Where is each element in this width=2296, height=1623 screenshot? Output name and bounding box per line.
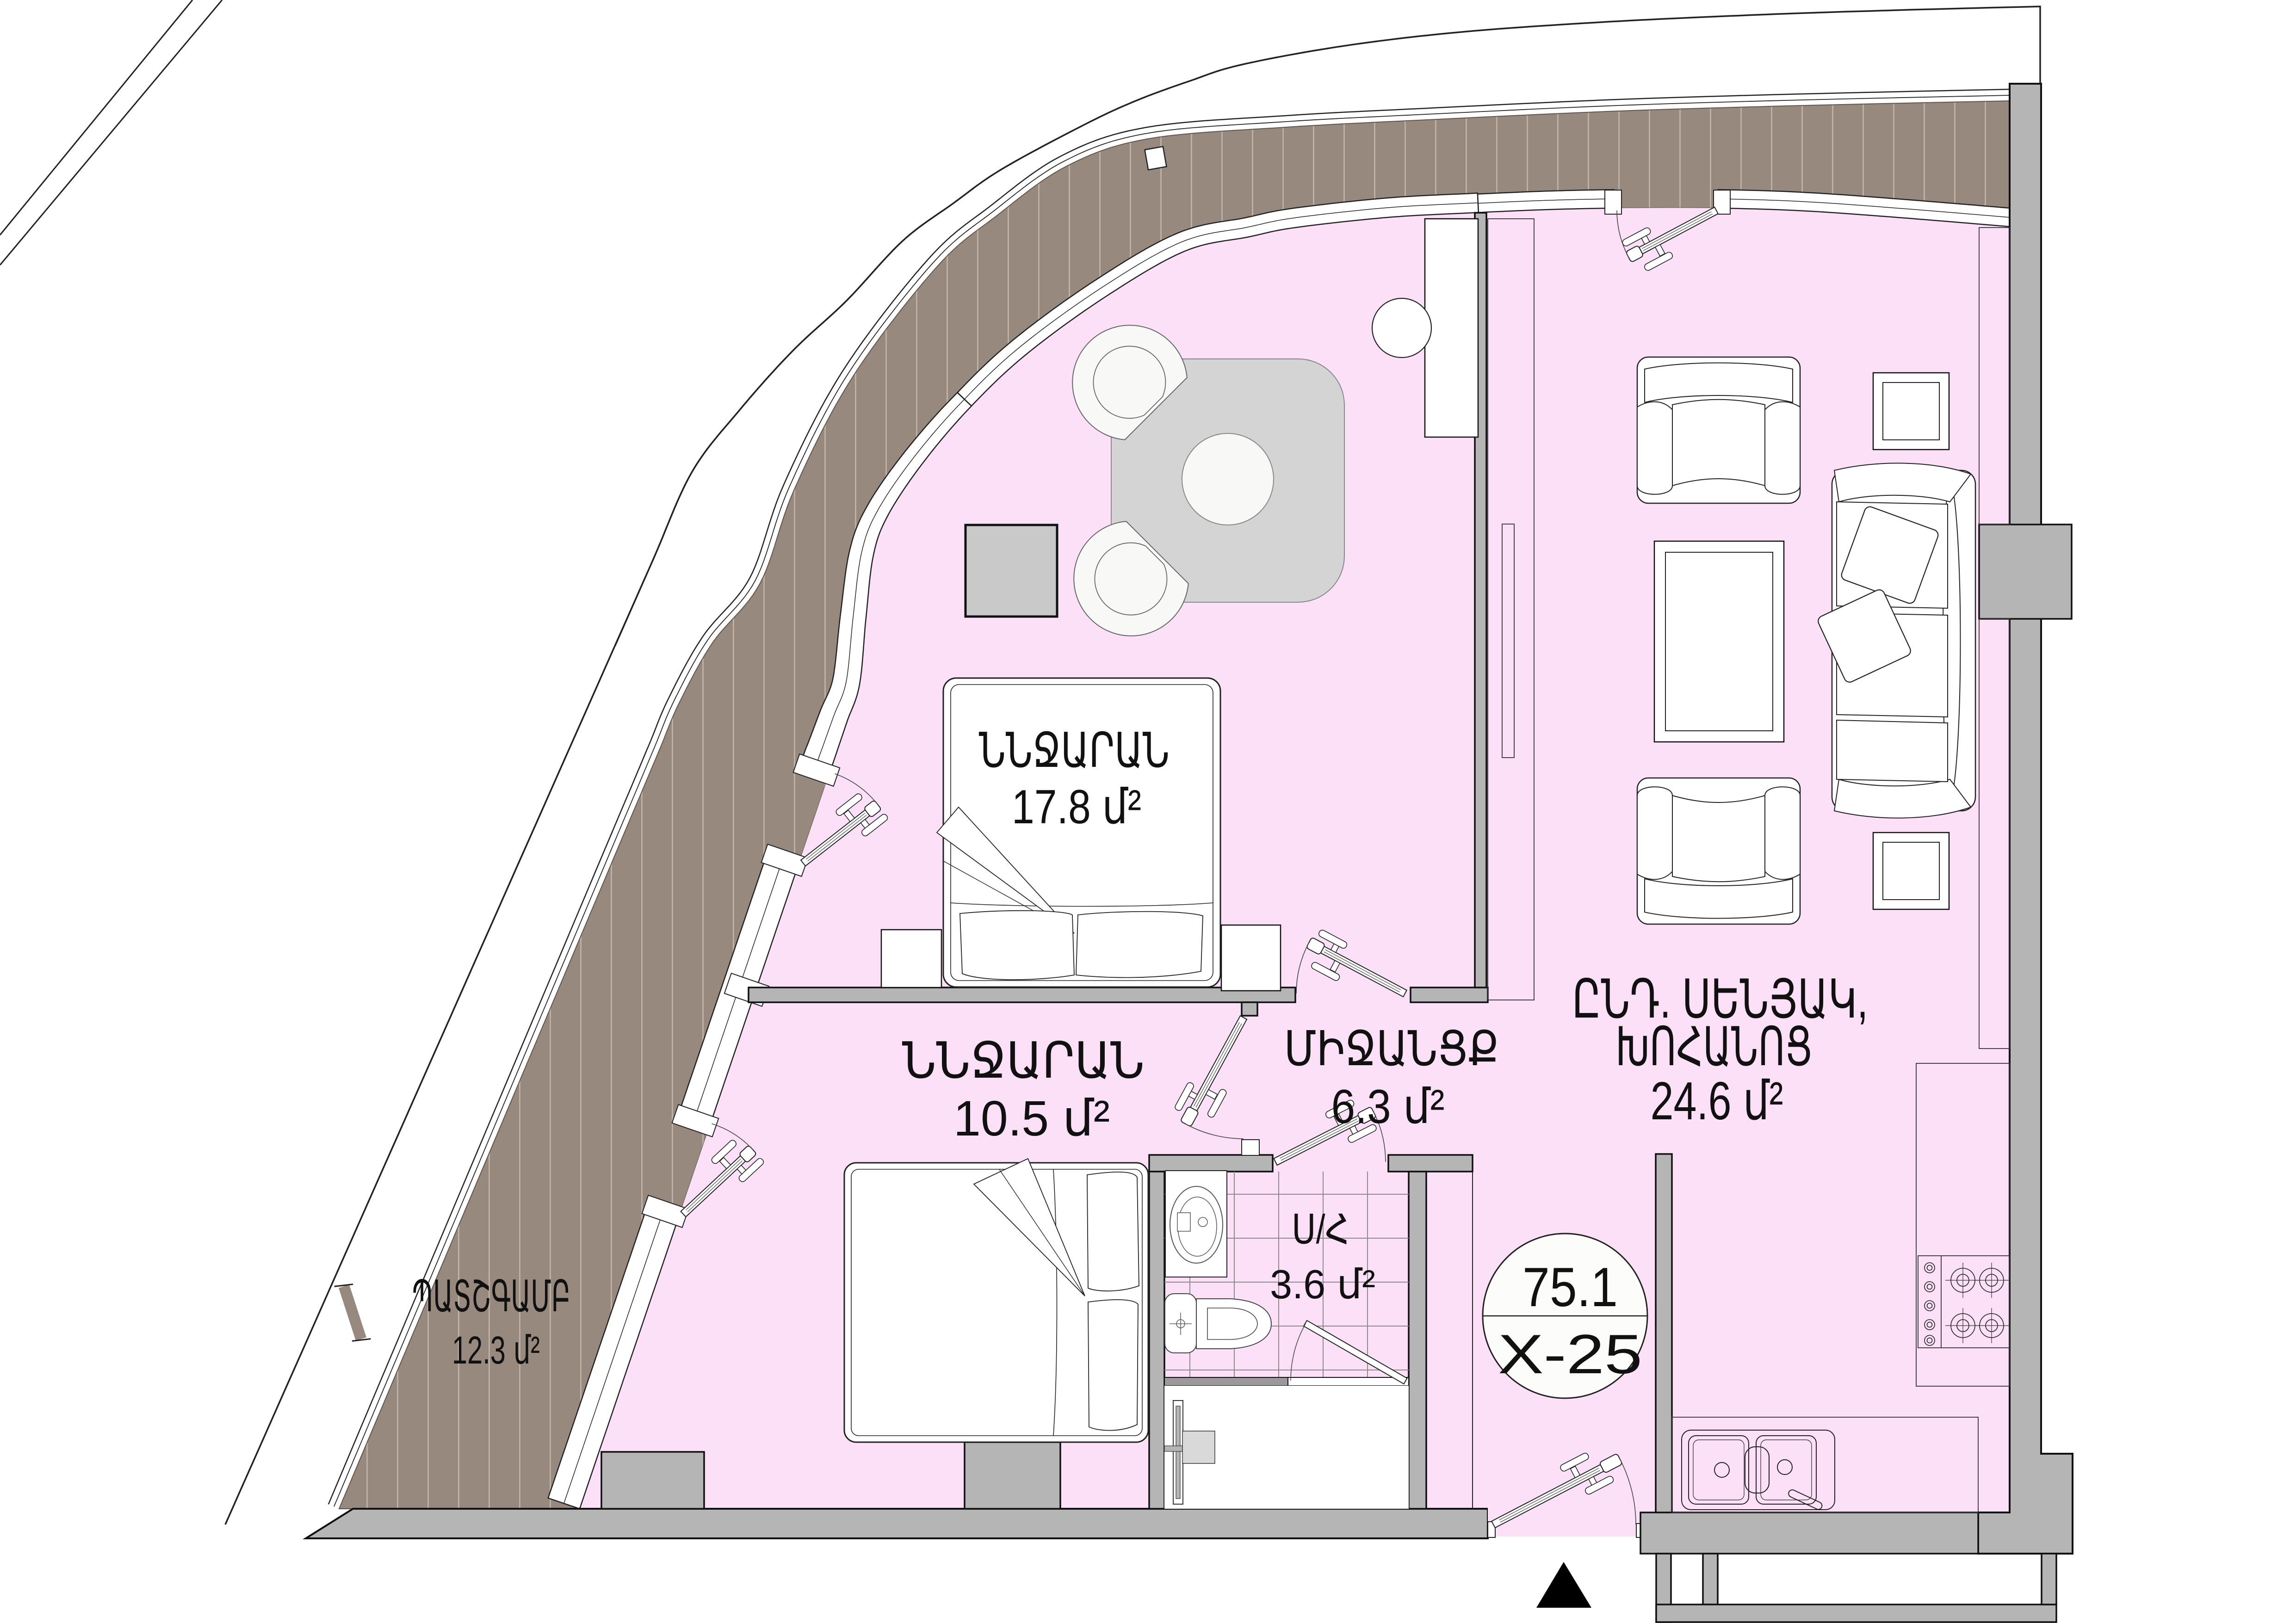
- svg-text:24.6 մ²: 24.6 մ²: [1651, 1071, 1783, 1131]
- svg-text:10.5 մ²: 10.5 մ²: [953, 1090, 1110, 1146]
- svg-text:6.3 մ²: 6.3 մ²: [1331, 1080, 1445, 1134]
- svg-text:ԽՈՀԱՆՈՑ: ԽՈՀԱՆՈՑ: [1615, 1017, 1813, 1077]
- svg-text:ՄԻՋԱՆՑՔ: ՄԻՋԱՆՑՔ: [1284, 1022, 1499, 1076]
- svg-text:75.1: 75.1: [1522, 1256, 1618, 1318]
- svg-text:Ս/Հ: Ս/Հ: [1292, 1206, 1349, 1252]
- svg-text:12.3 մ²: 12.3 մ²: [452, 1328, 540, 1372]
- svg-text:ՊԱՏՇԳԱՄԲ: ՊԱՏՇԳԱՄԲ: [412, 1272, 570, 1321]
- svg-text:X-25: X-25: [1498, 1323, 1642, 1385]
- svg-text:3.6 մ²: 3.6 մ²: [1270, 1261, 1375, 1307]
- svg-text:17.8 մ²: 17.8 մ²: [1012, 780, 1141, 834]
- svg-text:ՆՆՋԱՐԱՆ: ՆՆՋԱՐԱՆ: [902, 1032, 1145, 1088]
- svg-text:ՆՆՋԱՐԱՆ: ՆՆՋԱՐԱՆ: [979, 724, 1170, 778]
